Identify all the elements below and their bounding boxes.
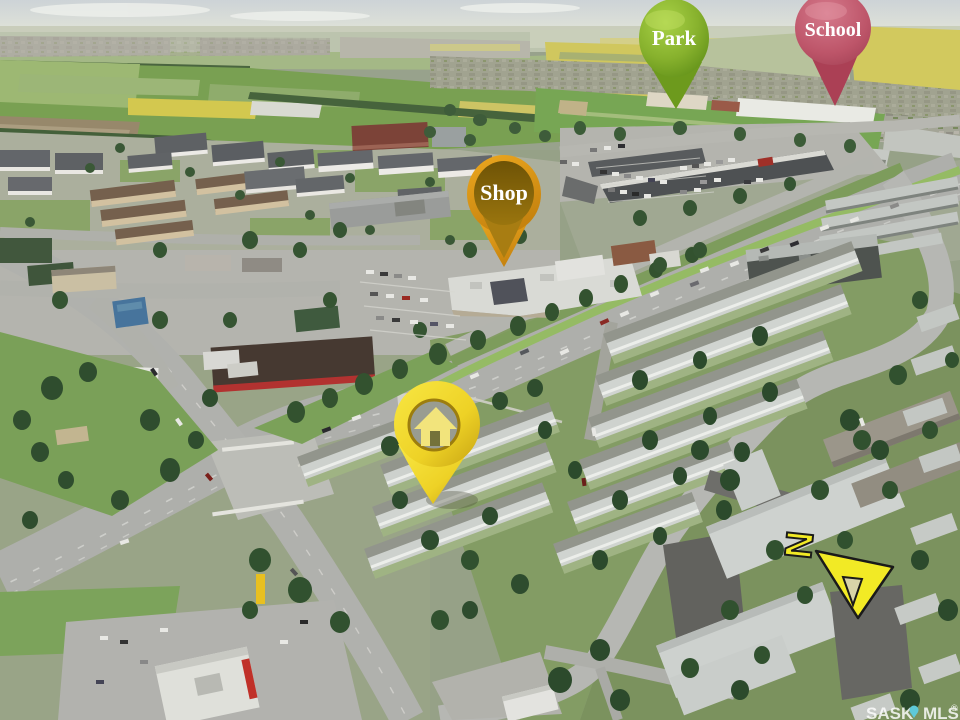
svg-text:Shop: Shop: [480, 180, 528, 205]
svg-text:®: ®: [951, 703, 958, 713]
svg-text:N: N: [778, 529, 823, 561]
svg-text:Park: Park: [652, 26, 697, 50]
svg-text:SASK: SASK: [866, 704, 914, 720]
svg-text:School: School: [805, 19, 862, 41]
